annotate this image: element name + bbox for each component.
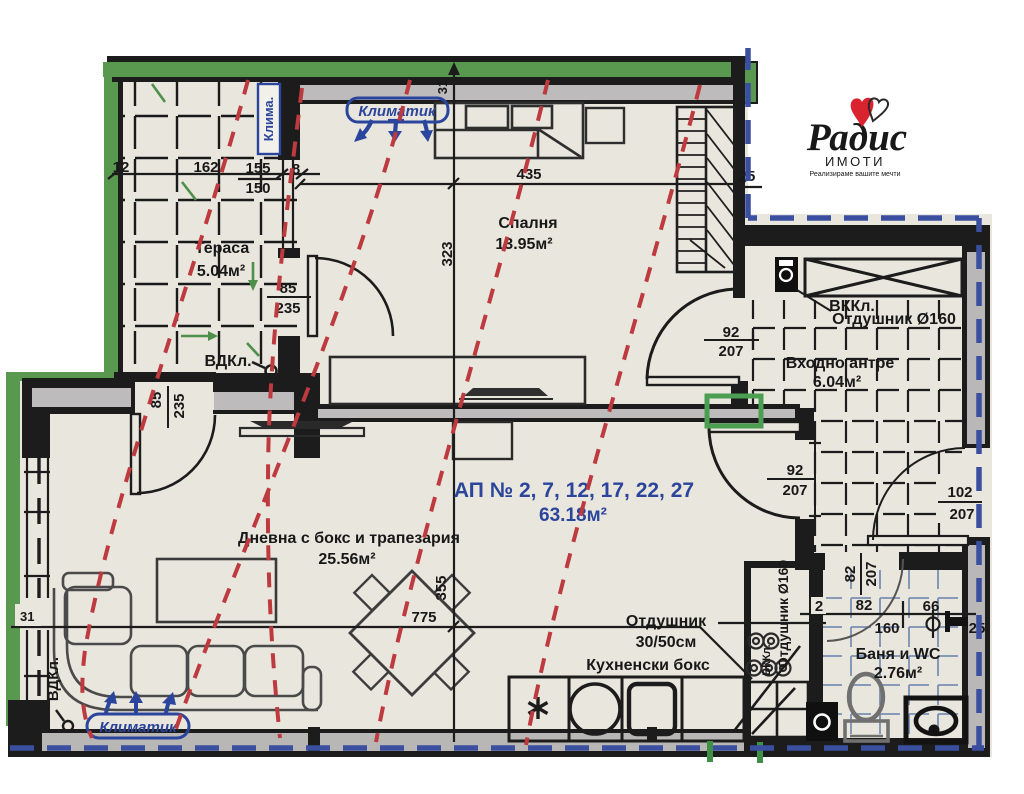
svg-text:775: 775 bbox=[411, 609, 436, 626]
svg-text:ИМОТИ: ИМОТИ bbox=[825, 154, 885, 169]
svg-text:102: 102 bbox=[947, 484, 972, 501]
svg-text:25.56м²: 25.56м² bbox=[318, 551, 375, 568]
svg-text:435: 435 bbox=[516, 166, 541, 183]
svg-text:ВККл.: ВККл. bbox=[761, 644, 773, 675]
svg-text:92: 92 bbox=[787, 462, 804, 479]
svg-text:235: 235 bbox=[275, 300, 300, 317]
svg-text:30/50см: 30/50см bbox=[636, 634, 697, 651]
svg-text:150: 150 bbox=[245, 180, 270, 197]
svg-text:5.04м²: 5.04м² bbox=[197, 263, 245, 280]
svg-text:12: 12 bbox=[113, 159, 130, 176]
svg-text:ВДКл.: ВДКл. bbox=[45, 657, 62, 701]
svg-text:31: 31 bbox=[435, 80, 450, 94]
svg-text:63.18м²: 63.18м² bbox=[539, 505, 607, 526]
svg-text:355: 355 bbox=[433, 575, 450, 600]
svg-text:66: 66 bbox=[923, 598, 940, 615]
svg-text:207: 207 bbox=[863, 561, 880, 586]
svg-text:6.04м²: 6.04м² bbox=[813, 374, 861, 391]
svg-text:2: 2 bbox=[815, 598, 823, 615]
svg-text:235: 235 bbox=[171, 393, 188, 418]
svg-text:Отдушник: Отдушник bbox=[626, 613, 707, 630]
svg-text:Тераса: Тераса bbox=[195, 240, 250, 257]
svg-text:92: 92 bbox=[723, 324, 740, 341]
svg-text:323: 323 bbox=[439, 241, 456, 266]
svg-text:160: 160 bbox=[874, 620, 899, 637]
svg-text:85: 85 bbox=[280, 280, 297, 297]
svg-text:82: 82 bbox=[842, 566, 859, 583]
svg-text:ВДКл.: ВДКл. bbox=[204, 353, 251, 370]
svg-text:Отдушник Ø160: Отдушник Ø160 bbox=[775, 560, 791, 668]
svg-text:Спалня: Спалня bbox=[498, 215, 557, 232]
svg-text:АП № 2, 7, 12, 17, 22, 27: АП № 2, 7, 12, 17, 22, 27 bbox=[454, 479, 694, 502]
svg-text:207: 207 bbox=[949, 506, 974, 523]
svg-text:Реализираме вашите мечти: Реализираме вашите мечти bbox=[810, 171, 901, 178]
svg-text:Баня и WC: Баня и WC bbox=[856, 646, 941, 663]
svg-text:Радис: Радис bbox=[806, 116, 907, 159]
svg-text:31: 31 bbox=[20, 609, 34, 624]
svg-text:Климатик: Климатик bbox=[358, 103, 437, 120]
svg-text:162: 162 bbox=[193, 159, 218, 176]
svg-text:Кухненски бокс: Кухненски бокс bbox=[586, 657, 710, 674]
svg-text:82: 82 bbox=[856, 597, 873, 614]
svg-text:207: 207 bbox=[718, 343, 743, 360]
svg-text:155: 155 bbox=[245, 160, 270, 177]
svg-text:207: 207 bbox=[782, 482, 807, 499]
svg-text:Отдушник Ø160: Отдушник Ø160 bbox=[832, 311, 956, 328]
svg-text:2.76м²: 2.76м² bbox=[874, 665, 922, 682]
svg-text:Клима.: Клима. bbox=[261, 97, 276, 141]
svg-text:Входно антре: Входно антре bbox=[786, 355, 895, 372]
svg-text:Климатик: Климатик bbox=[99, 719, 178, 736]
